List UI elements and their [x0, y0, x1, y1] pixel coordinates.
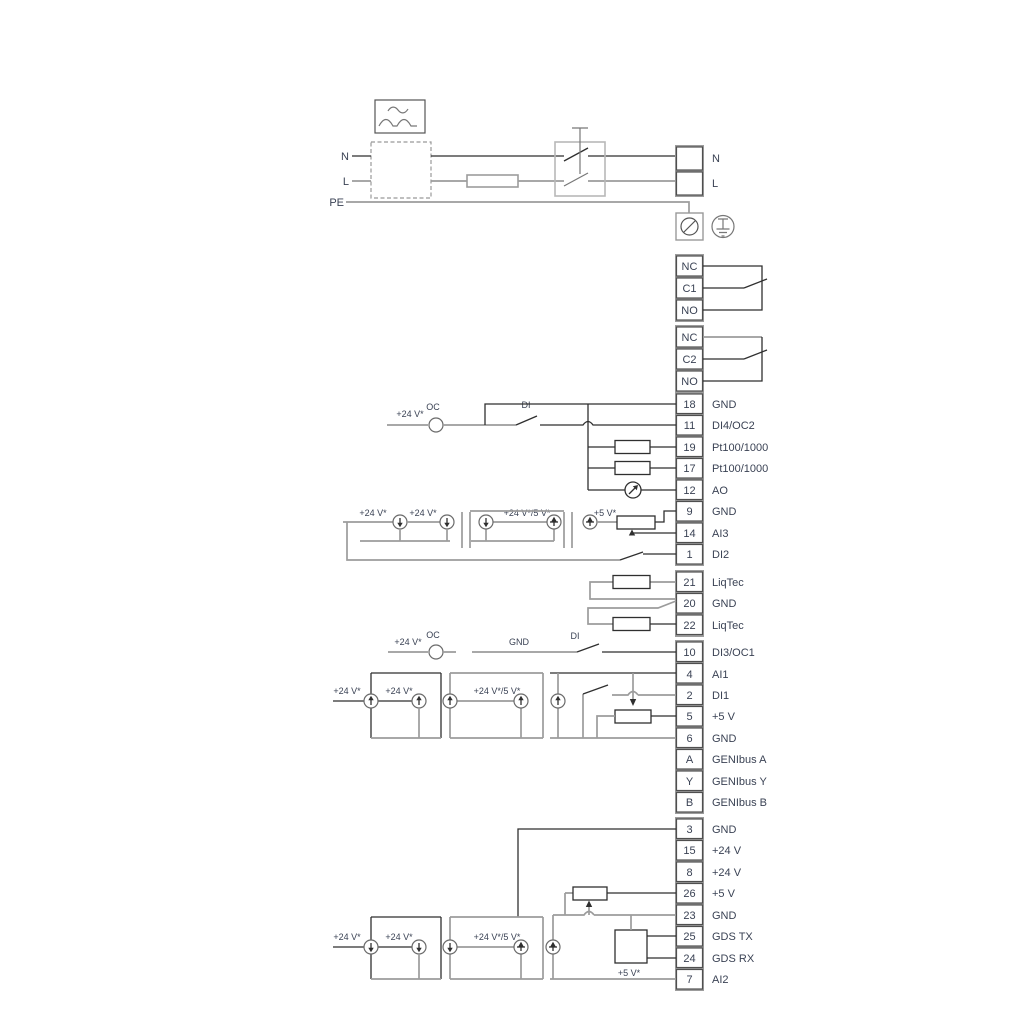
terminal-num: 21 — [683, 577, 695, 589]
terminal-label: GND — [712, 399, 737, 411]
terminal-num: B — [686, 797, 693, 809]
terminal-num: 10 — [683, 647, 695, 659]
current-source-icon — [364, 694, 378, 708]
terminal-num: Y — [686, 776, 694, 788]
current-sink-icon — [412, 940, 426, 954]
n-switch-blade — [564, 148, 588, 161]
terminal-label: GENIbus Y — [712, 776, 767, 788]
terminal-num: 18 — [683, 399, 695, 411]
terminal-label: GDS TX — [712, 931, 753, 943]
di-switch-blade — [577, 644, 599, 652]
current-sink-icon — [393, 515, 407, 529]
terminal-num: A — [686, 754, 694, 766]
current-source-icon — [551, 694, 565, 708]
sec-c-gnd-label: GND — [509, 637, 530, 647]
terminal-num: 3 — [686, 824, 692, 836]
terminal-label: GDS RX — [712, 953, 755, 965]
pt100-resistor — [615, 462, 650, 475]
terminal-label: GENIbus B — [712, 797, 767, 809]
sec-d-24v5v-label: +24 V*/5 V* — [474, 686, 521, 696]
voltage-source-icon — [514, 940, 528, 954]
terminal-num: 12 — [683, 485, 695, 497]
sec-a-24v-label: +24 V* — [396, 409, 424, 419]
wiper-arrow-icon — [586, 901, 592, 908]
current-source-icon — [514, 694, 528, 708]
sec-a-oc-label: OC — [426, 402, 440, 412]
terminal-strip-3: 10 4 2 5 6 A Y B DI3/OC1 AI1 DI1 +5 V GN… — [675, 640, 767, 814]
terminal-num: 24 — [683, 953, 695, 965]
terminal-label: GND — [712, 910, 737, 922]
terminal-num: 11 — [684, 420, 695, 432]
n-line-label: N — [341, 151, 349, 163]
sec-c-24v-label: +24 V* — [394, 637, 422, 647]
relay2-contact-blade — [744, 350, 767, 359]
terminal-label: +5 V — [712, 888, 736, 900]
relay1-c1: C1 — [682, 283, 696, 295]
terminal-label: DI3/OC1 — [712, 647, 755, 659]
wiring-section-e: +24 V* +24 V* +24 V*/5 V* +5 V* — [333, 829, 676, 979]
pt100-resistor — [615, 441, 650, 454]
sec-c-di-label: DI — [571, 631, 580, 641]
pe-line-label: PE — [329, 197, 344, 209]
relay1-no: NO — [681, 305, 698, 317]
terminal-label: Pt100/1000 — [712, 442, 768, 454]
relay-2: NC C2 NO — [675, 325, 767, 393]
relay1-wires — [703, 266, 762, 310]
di2-switch-blade — [620, 552, 643, 560]
terminal-label: DI1 — [712, 690, 729, 702]
terminal-num: 6 — [686, 733, 692, 745]
relay1-contact-blade — [744, 279, 767, 288]
wiring-section-d: +24 V* +24 V* +24 V*/5 V* — [333, 673, 676, 738]
current-sink-icon — [364, 940, 378, 954]
sec-b-24v-label-2: +24 V* — [409, 508, 437, 518]
sec-e-5v-label: +5 V* — [618, 968, 641, 978]
terminal-num: 14 — [683, 528, 695, 540]
liqtec-section — [588, 576, 676, 631]
terminal-label: LiqTec — [712, 620, 744, 632]
terminal-label: AO — [712, 485, 728, 497]
terminal-label: GND — [712, 824, 737, 836]
terminal-label: GND — [712, 598, 737, 610]
terminal-num: 17 — [683, 463, 695, 475]
terminal-label: +5 V — [712, 711, 736, 723]
earth-symbol-icon — [712, 216, 734, 238]
terminal-num: 4 — [686, 669, 692, 681]
input-unit-box — [371, 142, 431, 198]
voltage-source-icon — [583, 515, 597, 529]
sec-d-24v-label-1: +24 V* — [333, 686, 361, 696]
wiring-diagram: N L PE N L — [0, 0, 1024, 1024]
potentiometer — [573, 887, 607, 900]
terminal-label: Pt100/1000 — [712, 463, 768, 475]
terminal-num: 5 — [686, 711, 692, 723]
pe-screw-terminal — [676, 213, 703, 240]
analog-output-meter-icon — [625, 482, 641, 498]
wiring-section-a: +24 V* OC DI — [387, 400, 676, 498]
current-sink-icon — [440, 515, 454, 529]
terminal-strip-2: 21 20 22 LiqTec GND LiqTec — [675, 570, 744, 637]
terminal-label: DI2 — [712, 549, 729, 561]
wiring-section-b: +24 V* +24 V* +24 V*/5 V* +5 V* — [343, 508, 676, 560]
sec-e-24v-label-1: +24 V* — [333, 932, 361, 942]
terminal-l-label: L — [712, 178, 718, 190]
terminal-num: 26 — [683, 888, 695, 900]
sec-e-24v5v-label: +24 V*/5 V* — [474, 932, 521, 942]
terminal-n-label: N — [712, 153, 720, 165]
di1-switch-blade — [583, 685, 608, 694]
terminal-num: 2 — [686, 690, 692, 702]
relay2-c2: C2 — [682, 354, 696, 366]
terminal-num: 20 — [683, 598, 695, 610]
l-switch-blade — [564, 173, 588, 186]
terminal-label: GENIbus A — [712, 754, 767, 766]
current-sink-icon — [479, 515, 493, 529]
terminal-strip-4: 3 15 8 26 23 25 24 7 GND +24 V +24 V +5 … — [675, 817, 755, 991]
terminal-label: AI2 — [712, 974, 729, 986]
relay2-nc: NC — [682, 332, 698, 344]
gds-sensor-box — [615, 915, 676, 963]
liqtec-sensor-resistor — [613, 618, 650, 631]
power-section: N L PE N L — [329, 100, 734, 240]
open-collector-icon — [429, 418, 443, 432]
wiring-section-c: +24 V* OC GND DI — [388, 630, 676, 659]
sec-a-di-label: DI — [522, 400, 531, 410]
terminal-label: AI3 — [712, 528, 729, 540]
terminal-label: GND — [712, 733, 737, 745]
supply-terminal-block: N L — [675, 145, 720, 197]
pe-wire — [346, 202, 689, 213]
terminal-label: GND — [712, 506, 737, 518]
sec-c-oc-label: OC — [426, 630, 440, 640]
terminal-num: 15 — [683, 845, 695, 857]
sec-d-24v-label-2: +24 V* — [385, 686, 413, 696]
terminal-label: +24 V — [712, 845, 742, 857]
current-source-icon — [443, 694, 457, 708]
l-line-label: L — [343, 176, 349, 188]
current-source-icon — [412, 694, 426, 708]
relay1-nc: NC — [682, 261, 698, 273]
sec-e-24v-label-2: +24 V* — [385, 932, 413, 942]
fuse — [467, 175, 518, 187]
terminal-strip-1: 18 11 19 17 12 9 14 1 GND DI4/OC2 Pt100/… — [675, 392, 768, 566]
mains-symbol-box — [375, 100, 425, 133]
sec-b-24v-label-1: +24 V* — [359, 508, 387, 518]
current-sink-icon — [443, 940, 457, 954]
terminal-label: DI4/OC2 — [712, 420, 755, 432]
sec-b-5v-label: +5 V* — [594, 508, 617, 518]
sec-b-24v5v-label: +24 V*/5 V* — [504, 508, 551, 518]
relay2-no: NO — [681, 376, 698, 388]
open-collector-icon — [429, 645, 443, 659]
wiper-arrow-icon — [630, 699, 636, 706]
voltage-source-icon — [547, 515, 561, 529]
terminal-label: AI1 — [712, 669, 729, 681]
terminal-num: 9 — [686, 506, 692, 518]
terminal-num: 7 — [686, 974, 692, 986]
terminal-num: 19 — [683, 442, 695, 454]
terminal-num: 22 — [683, 620, 695, 632]
relay2-wires — [703, 337, 762, 381]
terminal-label: LiqTec — [712, 577, 744, 589]
voltage-source-icon — [546, 940, 560, 954]
terminal-num: 1 — [686, 549, 692, 561]
terminal-num: 8 — [686, 867, 692, 879]
potentiometer — [617, 516, 655, 529]
terminal-num: 25 — [683, 931, 695, 943]
main-switch — [555, 128, 605, 196]
terminal-label: +24 V — [712, 867, 742, 879]
di-switch-blade — [516, 416, 537, 425]
terminal-num: 23 — [683, 910, 695, 922]
potentiometer — [615, 710, 651, 723]
liqtec-sensor-resistor — [613, 576, 650, 589]
relay-1: NC C1 NO — [675, 254, 767, 322]
